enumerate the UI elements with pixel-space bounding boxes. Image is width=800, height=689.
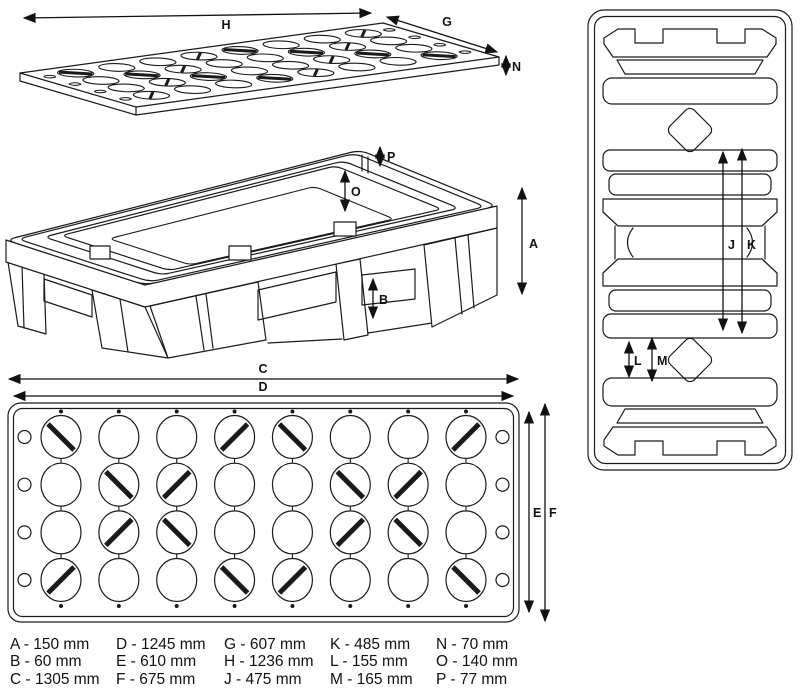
dimension-legend: A - 150 mm B - 60 mm C - 1305 mm D - 124… [0,636,800,689]
technical-drawing-sheet: H G N [0,0,800,689]
sump-leg-front-2 [336,259,368,340]
drawing-canvas: H G N [0,0,800,632]
dim-label-L: L [634,354,642,368]
legend-column: K - 485 mm L - 155 mm M - 165 mm [330,636,413,688]
bottom-outline-outer [588,10,792,470]
legend-item: L - 155 mm [330,653,413,670]
rim-tab [334,222,356,236]
pallet-sump-isometric-view: P O A B [6,147,538,358]
index-dot [406,410,410,414]
legend-item: N - 70 mm [436,636,518,653]
dim-label-E: E [533,506,541,520]
index-dot [348,604,352,608]
index-dot [290,604,294,608]
legend-item: H - 1236 mm [224,653,314,670]
legend-item: E - 610 mm [116,653,206,670]
index-dot [59,604,63,608]
lid-top-view: C D E F [8,362,557,622]
legend-item: O - 140 mm [436,653,518,670]
dim-label-C: C [258,362,267,376]
index-dot [117,604,121,608]
index-dot [233,604,237,608]
dim-label-P: P [387,150,395,164]
lid-isometric-view: H G N [20,13,521,115]
dim-label-N: N [512,60,521,74]
index-dot [290,410,294,414]
index-dot [348,410,352,414]
dim-label-M: M [657,354,667,368]
ground-line [268,339,342,343]
index-dot [175,604,179,608]
index-dot [233,410,237,414]
dim-label-A: A [529,237,538,251]
legend-item: D - 1245 mm [116,636,206,653]
lid-plate-top-face [20,23,499,107]
rim-tab [229,246,251,260]
index-dot [464,604,468,608]
legend-item: M - 165 mm [330,671,413,688]
dim-arrow-H [24,13,371,18]
dim-label-O: O [351,185,361,199]
legend-column: N - 70 mm O - 140 mm P - 77 mm [436,636,518,688]
dim-label-F: F [549,506,557,520]
index-dot [175,410,179,414]
legend-column: G - 607 mm H - 1236 mm J - 475 mm [224,636,314,688]
index-dot [59,410,63,414]
pallet-bottom-view: J K L M [588,10,792,470]
legend-item: A - 150 mm [10,636,100,653]
legend-item: C - 1305 mm [10,671,100,688]
rim-tab [90,246,110,259]
legend-item: B - 60 mm [10,653,100,670]
legend-column: D - 1245 mm E - 610 mm F - 675 mm [116,636,206,688]
legend-item: K - 485 mm [330,636,413,653]
dim-label-G: G [442,15,452,29]
dim-label-J: J [728,238,735,252]
dim-label-D: D [258,380,267,394]
legend-column: A - 150 mm B - 60 mm C - 1305 mm [10,636,100,688]
ground-line [368,323,432,333]
dim-label-H: H [221,18,230,32]
legend-item: G - 607 mm [224,636,314,653]
legend-item: J - 475 mm [224,671,314,688]
index-dot [406,604,410,608]
dim-label-K: K [747,238,756,252]
fork-pocket-front-2 [362,269,415,305]
lid-outline-outer [8,403,519,622]
dim-label-B: B [379,293,388,307]
index-dot [464,410,468,414]
legend-item: P - 77 mm [436,671,518,688]
legend-item: F - 675 mm [116,671,206,688]
index-dot [117,410,121,414]
sump-leg-front-3 [424,228,497,327]
